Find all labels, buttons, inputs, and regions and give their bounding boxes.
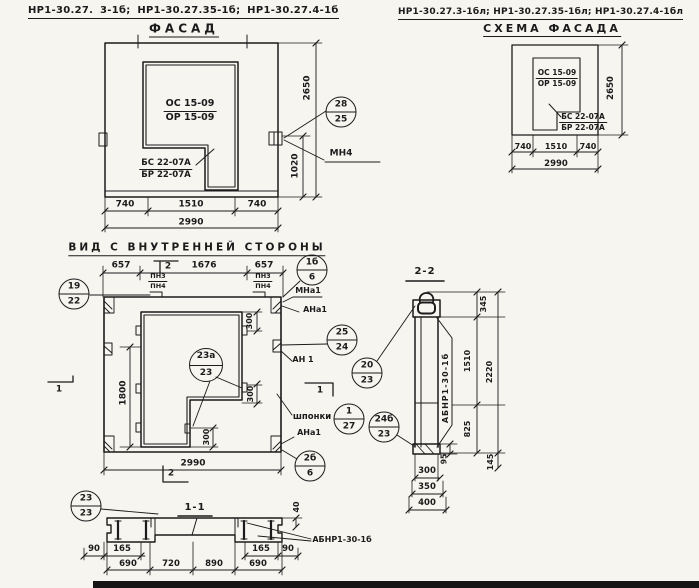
dim-165-left: 165 bbox=[113, 545, 131, 554]
callout-bottom: 6 bbox=[298, 271, 327, 285]
label-mna1: МНа1 bbox=[295, 287, 321, 295]
inner-dim-300-3: 300 bbox=[203, 429, 211, 446]
member-label-1-1: АБНР1-30-1б bbox=[312, 536, 371, 544]
facade-dims bbox=[102, 40, 322, 232]
facade-dim-total: 2990 bbox=[178, 219, 203, 228]
dim-690b: 690 bbox=[249, 560, 267, 569]
schema-dim-740b: 740 bbox=[580, 143, 597, 151]
callout-bottom: 22 bbox=[60, 295, 89, 309]
callout-top: 19 bbox=[60, 280, 89, 295]
dim-350-bottom: 350 bbox=[418, 483, 436, 492]
dim-1510: 1510 bbox=[464, 350, 472, 372]
callout-bottom: 27 bbox=[335, 420, 364, 434]
schema-dim-1510: 1510 bbox=[545, 143, 567, 151]
facade-anchor-mark-label: МН4 bbox=[330, 150, 353, 159]
label-ana1-bottom: АНа1 bbox=[297, 429, 321, 437]
drawing-sheet: НР1-30.27. 3-1б; НР1-30.27.35-1б; НР1-30… bbox=[0, 0, 699, 588]
callout-28-25: 28 25 bbox=[326, 97, 357, 128]
dim-890: 890 bbox=[205, 560, 223, 569]
title-section-1-1: 1-1 bbox=[184, 503, 205, 513]
inner-dim-total: 2990 bbox=[180, 460, 205, 469]
facade-dim-1510: 1510 bbox=[178, 201, 203, 210]
callout-1b-6: 1б 6 bbox=[297, 255, 328, 286]
schema-sill-mark: БС 22-07А БР 22-07А bbox=[559, 112, 607, 133]
inner-dim-1800: 1800 bbox=[120, 380, 129, 405]
schema-dims bbox=[509, 42, 628, 173]
section-1-1-outline bbox=[107, 516, 311, 542]
inner-dim-300-2: 300 bbox=[247, 386, 255, 403]
label-ana1-top: АНа1 bbox=[303, 306, 327, 314]
plate-mark-right: ПН3 ПН4 bbox=[253, 272, 272, 291]
callout-1-27: 1 27 bbox=[334, 404, 365, 435]
schema-dim-total: 2990 bbox=[544, 160, 568, 169]
schema-window-mark: ОС 15-09 ОР 15-09 bbox=[536, 68, 578, 89]
inner-dim-1676: 1676 bbox=[191, 262, 216, 271]
callout-top: 23 bbox=[72, 492, 101, 507]
dim-40: 40 bbox=[293, 501, 301, 512]
schema-dim-height: 2650 bbox=[607, 76, 616, 100]
dim-90-right: 90 bbox=[282, 545, 294, 554]
callout-19-22: 19 22 bbox=[59, 279, 90, 310]
callout-top: 20 bbox=[353, 359, 382, 374]
drawing-linework bbox=[0, 0, 699, 588]
facade-window-mark: ОС 15-09 ОР 15-09 bbox=[164, 98, 217, 125]
title-codes-left: НР1-30.27. 3-1б; НР1-30.27.35-1б; НР1-30… bbox=[28, 6, 339, 19]
callout-2b-6: 2б 6 bbox=[295, 451, 326, 482]
callout-24b-23: 24б 23 bbox=[369, 412, 400, 443]
section-mark-2-bottom: 2 bbox=[168, 470, 174, 479]
dim-690a: 690 bbox=[119, 560, 137, 569]
section-mark-2-top: 2 bbox=[165, 263, 171, 272]
callout-top: 23а bbox=[190, 349, 222, 366]
member-label-2-2: АБНР1-30-1б bbox=[442, 353, 450, 423]
callout-bottom: 23 bbox=[370, 428, 399, 442]
section-mark-1-right: 1 bbox=[317, 387, 323, 396]
title-inner-view: ВИД С ВНУТРЕННЕЙ СТОРОНЫ bbox=[68, 242, 325, 256]
callout-top: 2б bbox=[296, 452, 325, 467]
callout-top: 24б bbox=[370, 413, 399, 428]
callout-23-23: 23 23 bbox=[71, 491, 102, 522]
dim-90-left: 90 bbox=[88, 545, 100, 554]
callout-bottom: 23 bbox=[190, 366, 222, 382]
callout-bottom: 25 bbox=[327, 113, 356, 127]
inner-view-details bbox=[48, 261, 415, 514]
title-facade-schema: СХЕМА ФАСАДА bbox=[483, 23, 621, 37]
dim-2220: 2220 bbox=[486, 361, 494, 383]
dim-95: 95 bbox=[440, 454, 448, 464]
callout-top: 1 bbox=[335, 405, 364, 420]
schema-dim-740a: 740 bbox=[515, 143, 532, 151]
dim-400-bottom: 400 bbox=[418, 499, 436, 508]
plate-mark-left: ПН3 ПН4 bbox=[148, 272, 167, 291]
facade-sill-mark: БС 22-07А БР 22-07А bbox=[139, 158, 192, 182]
facade-dim-anchor: 1020 bbox=[292, 153, 301, 178]
dim-825: 825 bbox=[464, 421, 472, 438]
dim-345: 345 bbox=[480, 296, 488, 313]
callout-bottom: 6 bbox=[296, 467, 325, 481]
callout-bottom: 23 bbox=[353, 374, 382, 388]
dim-300-bottom: 300 bbox=[418, 467, 436, 476]
dim-720: 720 bbox=[162, 560, 180, 569]
section-mark-1-left: 1 bbox=[56, 386, 62, 395]
inner-dim-300-1: 300 bbox=[246, 313, 254, 330]
title-section-2-2: 2-2 bbox=[414, 267, 435, 277]
title-facade: ФАСАД bbox=[149, 23, 219, 38]
scan-edge bbox=[93, 581, 699, 588]
callout-20-23: 20 23 bbox=[352, 358, 383, 389]
facade-dim-height: 2650 bbox=[304, 75, 313, 100]
callout-bottom: 23 bbox=[72, 507, 101, 521]
inner-dim-657b: 657 bbox=[255, 262, 274, 271]
inner-dim-657a: 657 bbox=[112, 262, 131, 271]
dim-165-right: 165 bbox=[252, 545, 270, 554]
callout-25-24: 25 24 bbox=[327, 325, 358, 356]
label-keys: шпонки bbox=[293, 413, 331, 422]
callout-top: 1б bbox=[298, 256, 327, 271]
label-an1: АН 1 bbox=[292, 356, 313, 364]
title-codes-right: НР1-30.27.3-1бл; НР1-30.27.35-1бл; НР1-3… bbox=[398, 8, 683, 20]
callout-top: 25 bbox=[328, 326, 357, 341]
callout-top: 28 bbox=[327, 98, 356, 113]
facade-dim-740b: 740 bbox=[248, 201, 267, 210]
dim-145: 145 bbox=[487, 454, 495, 471]
callout-bottom: 24 bbox=[328, 341, 357, 355]
callout-23a-23: 23а 23 bbox=[189, 348, 223, 382]
facade-dim-740a: 740 bbox=[116, 201, 135, 210]
